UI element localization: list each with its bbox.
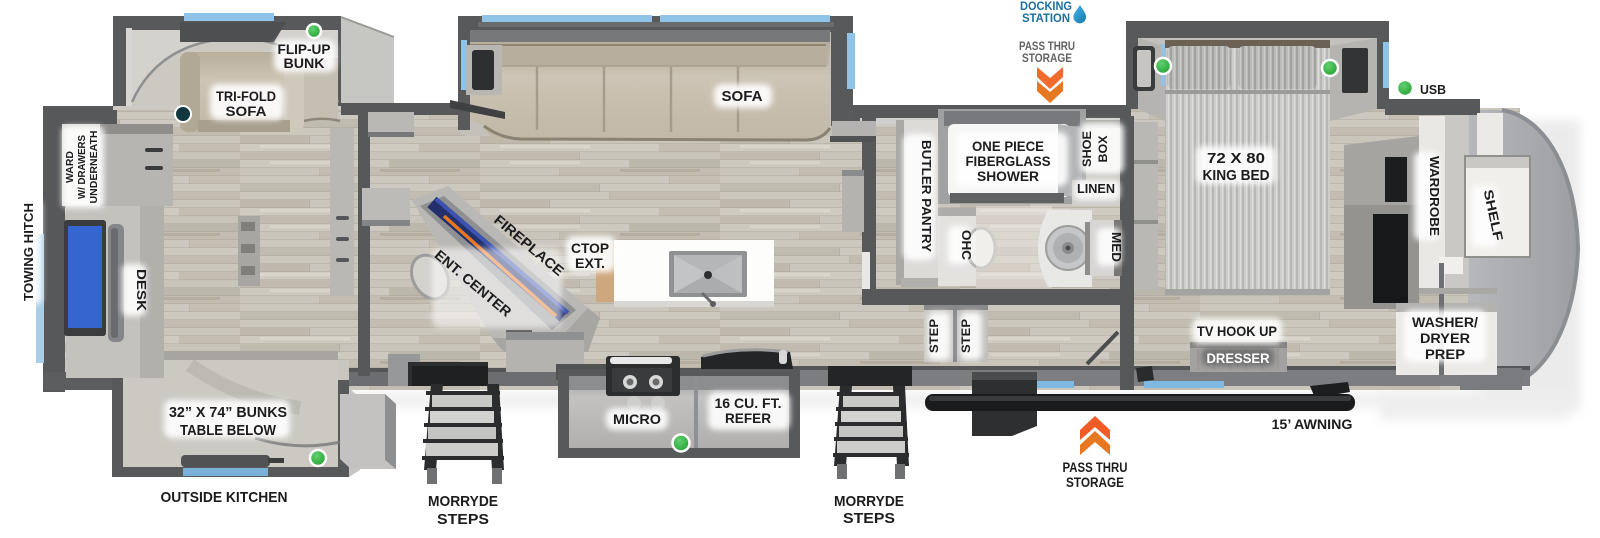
svg-text:BUNK: BUNK [284,55,325,71]
svg-text:MORRYDE: MORRYDE [834,493,904,510]
svg-text:STATION: STATION [1022,13,1070,25]
svg-text:PASS THRU: PASS THRU [1063,460,1128,475]
svg-text:TV HOOK UP: TV HOOK UP [1197,323,1277,339]
svg-text:SOFA: SOFA [722,88,763,105]
svg-text:DRESSER: DRESSER [1207,350,1270,366]
svg-text:SOFA: SOFA [226,103,267,119]
svg-text:W/ DRAWERS: W/ DRAWERS [76,135,88,199]
svg-text:DESK: DESK [134,269,149,312]
svg-text:SHOE: SHOE [1080,131,1094,167]
svg-text:72 X 80: 72 X 80 [1207,150,1265,167]
svg-text:STEPS: STEPS [437,511,489,528]
svg-text:MICRO: MICRO [613,411,661,427]
svg-text:CTOP: CTOP [571,240,609,256]
svg-text:WASHER/: WASHER/ [1412,315,1478,330]
svg-text:STEP: STEP [959,319,973,353]
svg-text:32” X 74” BUNKS: 32” X 74” BUNKS [169,404,287,421]
svg-text:OHC: OHC [959,230,973,260]
svg-text:STEPS: STEPS [843,510,895,527]
svg-text:PASS THRU: PASS THRU [1019,41,1075,53]
svg-text:FIBERGLASS: FIBERGLASS [966,154,1051,169]
svg-text:16 CU. FT.: 16 CU. FT. [715,395,782,411]
svg-text:STORAGE: STORAGE [1022,53,1072,65]
svg-text:STORAGE: STORAGE [1066,475,1124,490]
svg-text:MED: MED [1109,232,1123,262]
svg-text:WARDROBE: WARDROBE [1427,156,1442,236]
svg-text:USB: USB [1420,82,1446,97]
svg-text:15’ AWNING: 15’ AWNING [1272,416,1353,432]
svg-text:ONE PIECE: ONE PIECE [972,139,1044,154]
svg-text:BUTLER PANTRY: BUTLER PANTRY [919,140,934,252]
svg-text:SHOWER: SHOWER [977,169,1039,184]
svg-text:DOCKING: DOCKING [1020,1,1072,13]
svg-text:DRYER: DRYER [1420,331,1470,346]
svg-text:TOWING HITCH: TOWING HITCH [21,203,36,301]
svg-text:EXT.: EXT. [575,255,605,271]
svg-text:TRI-FOLD: TRI-FOLD [216,88,276,104]
svg-text:LINEN: LINEN [1077,182,1115,196]
svg-text:BOX: BOX [1096,136,1110,163]
svg-text:TABLE BELOW: TABLE BELOW [180,422,277,439]
svg-text:UNDERNEATH: UNDERNEATH [88,131,100,204]
svg-text:PREP: PREP [1425,347,1465,362]
svg-text:REFER: REFER [725,410,771,426]
svg-text:KING BED: KING BED [1203,167,1270,184]
svg-text:STEP: STEP [927,319,941,353]
svg-text:MORRYDE: MORRYDE [428,493,498,510]
svg-text:WARD: WARD [64,151,76,183]
svg-text:OUTSIDE KITCHEN: OUTSIDE KITCHEN [161,489,288,506]
